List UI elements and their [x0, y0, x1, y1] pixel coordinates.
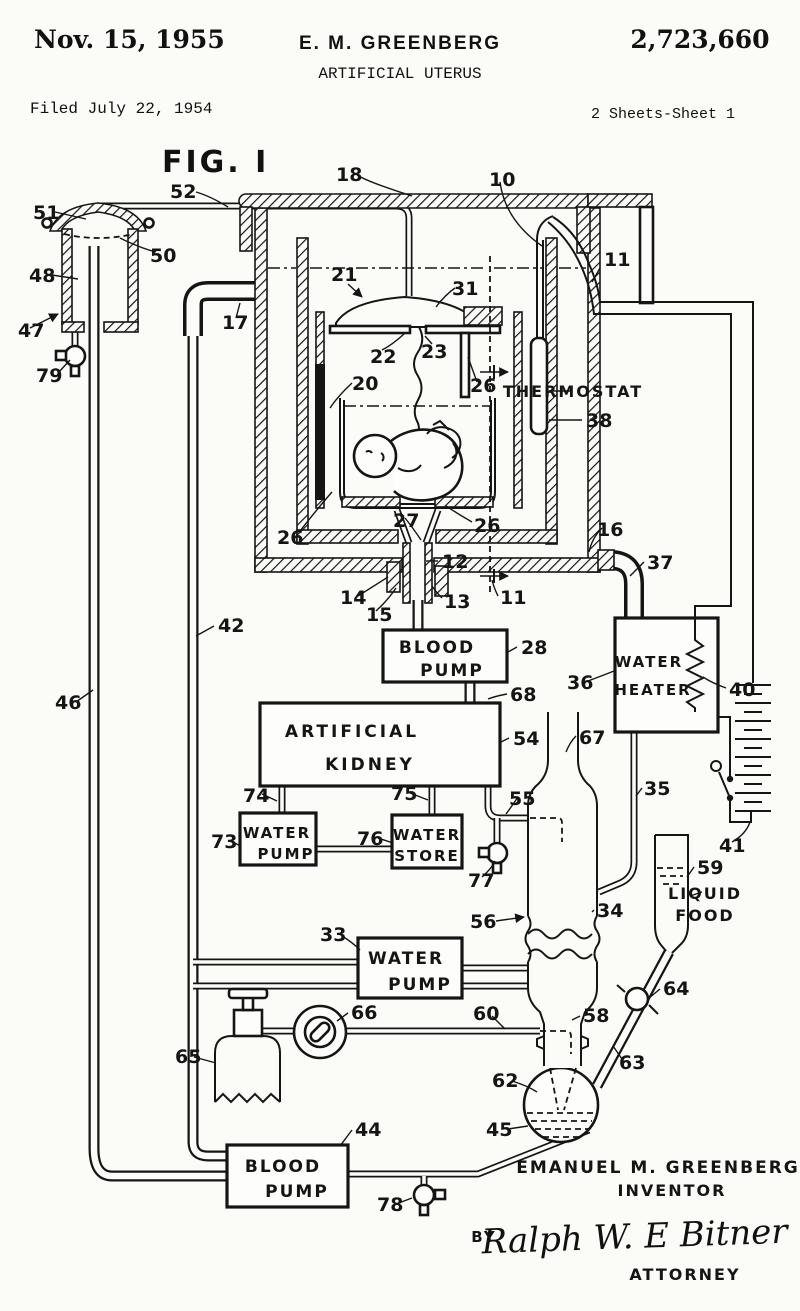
ref-label-74: 74 — [243, 785, 269, 807]
ref-label-54: 54 — [513, 728, 539, 750]
thermostat-stem-curve — [537, 216, 553, 240]
vessel34-left-wall-bottom — [528, 962, 544, 1066]
chamber-right-wall — [514, 312, 522, 508]
gas-cylinder-65 — [215, 1036, 280, 1102]
tank-outlet-fitting — [598, 550, 614, 570]
filter-screen-50 — [64, 234, 134, 238]
ref-label-33: 33 — [320, 924, 346, 946]
footer-inventor-name: EMANUEL M. GREENBERG — [516, 1158, 800, 1178]
support-plate-22 — [330, 326, 410, 333]
artificial-kidney-line2: KIDNEY — [325, 755, 415, 775]
tank-cover-right-extension — [588, 194, 652, 207]
ref-label-50: 50 — [150, 245, 176, 267]
patent-sheet: Nov. 15, 1955 E. M. GREENBERG 2,723,660 … — [0, 0, 800, 1311]
outer-tank-left-wall — [255, 208, 267, 572]
cylinder-cap — [234, 1010, 262, 1036]
footer-attorney-label: ATTORNEY — [629, 1265, 740, 1284]
spray-canopy-31 — [336, 297, 478, 327]
patent-title: ARTIFICIAL UTERUS — [318, 65, 481, 83]
pipe-46 — [94, 246, 229, 1176]
filed-date: Filed July 22, 1954 — [30, 100, 212, 118]
drain-tube-right-wall — [425, 543, 432, 603]
ref-label-78: 78 — [377, 1194, 403, 1216]
ref-label-65: 65 — [175, 1046, 201, 1068]
ref-label-59: 59 — [697, 857, 723, 879]
vessel34-left-wavy — [526, 916, 531, 962]
ref-label-37: 37 — [647, 552, 673, 574]
inner-tank-bottom-left — [297, 530, 398, 543]
ref-label-51: 51 — [33, 202, 59, 224]
patent-number: 2,723,660 — [630, 25, 769, 54]
gland-nut-14 — [387, 562, 400, 592]
ref-label-73: 73 — [211, 831, 237, 853]
cylinder-valve-handle — [229, 989, 267, 998]
pipe-42 — [193, 330, 229, 1156]
water-pump-33-line2: PUMP — [388, 975, 452, 995]
patent-date: Nov. 15, 1955 — [34, 25, 225, 54]
liquid-food-container-left — [655, 835, 666, 951]
filter-bottom-left — [62, 322, 84, 332]
valve-78 — [414, 1185, 445, 1215]
pipe-35 — [599, 730, 634, 892]
mixing-flask-62 — [524, 1068, 598, 1142]
water-heater-line2: HEATER — [614, 681, 691, 699]
ref-label-15: 15 — [366, 604, 392, 626]
water-pump-73-line1: WATER — [243, 824, 311, 842]
page-header: Nov. 15, 1955 E. M. GREENBERG 2,723,660 … — [30, 25, 770, 180]
ref-label-18: 18 — [336, 164, 362, 186]
ref-label-62: 62 — [492, 1070, 518, 1092]
dashed-pipe-55-inside — [530, 818, 562, 842]
pipe-46 — [94, 246, 229, 1176]
blood-pump-44-line2: PUMP — [265, 1182, 329, 1202]
ref-label-16: 16 — [597, 519, 623, 541]
drain-tube-left-wall — [403, 543, 410, 603]
ref-label-14: 14 — [340, 587, 366, 609]
water-heater-line1: WATER — [615, 653, 683, 671]
sheet-number: 2 Sheets-Sheet 1 — [591, 106, 735, 123]
ref-label-40: 40 — [729, 679, 755, 701]
ref-label-76: 76 — [357, 828, 383, 850]
filter-bottom-right — [104, 322, 138, 332]
ref-label-42: 42 — [218, 615, 244, 637]
patent-inventor: E. M. GREENBERG — [299, 33, 501, 54]
ref-label-52: 52 — [170, 181, 196, 203]
flask-neck-mask — [545, 1020, 580, 1068]
ref-label-77: 77 — [468, 870, 494, 892]
ref-label-20: 20 — [352, 373, 378, 395]
gas-supply — [215, 989, 346, 1102]
cover-right-lip — [577, 207, 590, 253]
ref-label-26: 26 — [277, 527, 303, 549]
water-store-line2: STORE — [394, 847, 460, 865]
artificial-kidney-line1: ARTIFICIAL — [285, 722, 419, 742]
hanger-rod-26 — [461, 333, 469, 397]
battery-41 — [735, 685, 771, 811]
ref-label-41: 41 — [719, 835, 745, 857]
ref-label-46: 46 — [55, 692, 81, 714]
ref-label-64: 64 — [663, 978, 689, 1000]
tub-bottom-left — [342, 497, 400, 507]
tank-cover — [239, 194, 588, 208]
ref-label-23: 23 — [421, 341, 447, 363]
heat-shield-strip-20 — [315, 364, 325, 500]
ref-label-11: 11 — [604, 249, 630, 271]
ref-label-66: 66 — [351, 1002, 377, 1024]
inner-tank-left-wall — [297, 238, 308, 544]
patent-drawing: Nov. 15, 1955 E. M. GREENBERG 2,723,660 … — [0, 0, 800, 1311]
water-pump-73-line2: PUMP — [257, 845, 314, 863]
ref-label-55: 55 — [509, 788, 535, 810]
switch-contact-top — [727, 776, 733, 782]
ref-label-75: 75 — [391, 783, 417, 805]
ref-label-58: 58 — [583, 1005, 609, 1027]
cylinder-torn-edge — [215, 1094, 280, 1102]
ref-label-22: 22 — [370, 346, 396, 368]
ref-label-45: 45 — [486, 1119, 512, 1141]
liquid-food-label-line1: LIQUID — [668, 884, 742, 903]
ref-label-28: 28 — [521, 637, 547, 659]
valve-77 — [479, 843, 507, 873]
ref-label-26: 26 — [470, 375, 496, 397]
switch-lever — [719, 772, 730, 798]
neck-nub-right — [581, 1036, 588, 1049]
ref-label-79: 79 — [36, 365, 62, 387]
ref-label-67: 67 — [579, 727, 605, 749]
figure-label: FIG. I — [162, 145, 269, 180]
fetus-head — [354, 435, 396, 477]
ref-label-12: 12 — [442, 551, 468, 573]
ref-label-63: 63 — [619, 1052, 645, 1074]
blood-pump-top-line2: PUMP — [420, 661, 484, 681]
cover-left-lip — [240, 207, 252, 251]
fetus-figure — [354, 421, 462, 500]
ref-label-60: 60 — [473, 1003, 499, 1025]
ref-label-34: 34 — [597, 900, 623, 922]
footer-inventor-label: INVENTOR — [618, 1181, 727, 1200]
attorney-signature: Ralph W. E Bitner — [480, 1212, 790, 1263]
ref-label-36: 36 — [567, 672, 593, 694]
neck-nub-left — [537, 1036, 544, 1049]
ref-label-10: 10 — [489, 169, 515, 191]
water-heater-box — [615, 618, 718, 732]
liquid-food-dashes — [660, 876, 683, 884]
ref-label-35: 35 — [644, 778, 670, 800]
ref-label-11: 11 — [500, 587, 526, 609]
water-heater-unit — [615, 618, 718, 732]
blood-pump-top-line1: BLOOD — [399, 638, 475, 658]
ref-label-48: 48 — [29, 265, 55, 287]
fetus-body — [391, 430, 462, 501]
ref-label-21: 21 — [331, 264, 357, 286]
ref-label-26: 26 — [474, 515, 500, 537]
thermostat-label: THERMOSTAT — [503, 382, 643, 401]
pipe-35 — [599, 730, 634, 892]
outer-tank-bottom-left — [255, 558, 402, 572]
ref-label-68: 68 — [510, 684, 536, 706]
ref-label-17: 17 — [222, 312, 248, 334]
ref-label-31: 31 — [452, 278, 478, 300]
vessel34-right-wavy — [595, 916, 600, 962]
ref-label-27: 27 — [393, 510, 419, 532]
ref-label-13: 13 — [444, 591, 470, 613]
ref-label-38: 38 — [586, 410, 612, 432]
cover-right-bracket — [640, 207, 653, 303]
liquid-food-label-line2: FOOD — [675, 906, 734, 925]
switch-handle-loop — [711, 761, 721, 771]
wavy-line-56a — [528, 930, 592, 939]
ref-label-44: 44 — [355, 1119, 381, 1141]
tub-bottom-right — [435, 497, 493, 507]
water-store-line1: WATER — [393, 826, 461, 844]
lid-lug-right — [145, 219, 154, 228]
water-pump-33-line1: WATER — [368, 949, 444, 969]
wavy-line-56b — [528, 950, 592, 959]
blood-pump-44-line1: BLOOD — [245, 1157, 321, 1177]
ref-label-47: 47 — [18, 320, 44, 342]
canopy-mount-block — [464, 307, 502, 325]
signature-block: EMANUEL M. GREENBERG INVENTOR BY Ralph W… — [471, 1158, 799, 1284]
ref-label-56: 56 — [470, 911, 496, 933]
